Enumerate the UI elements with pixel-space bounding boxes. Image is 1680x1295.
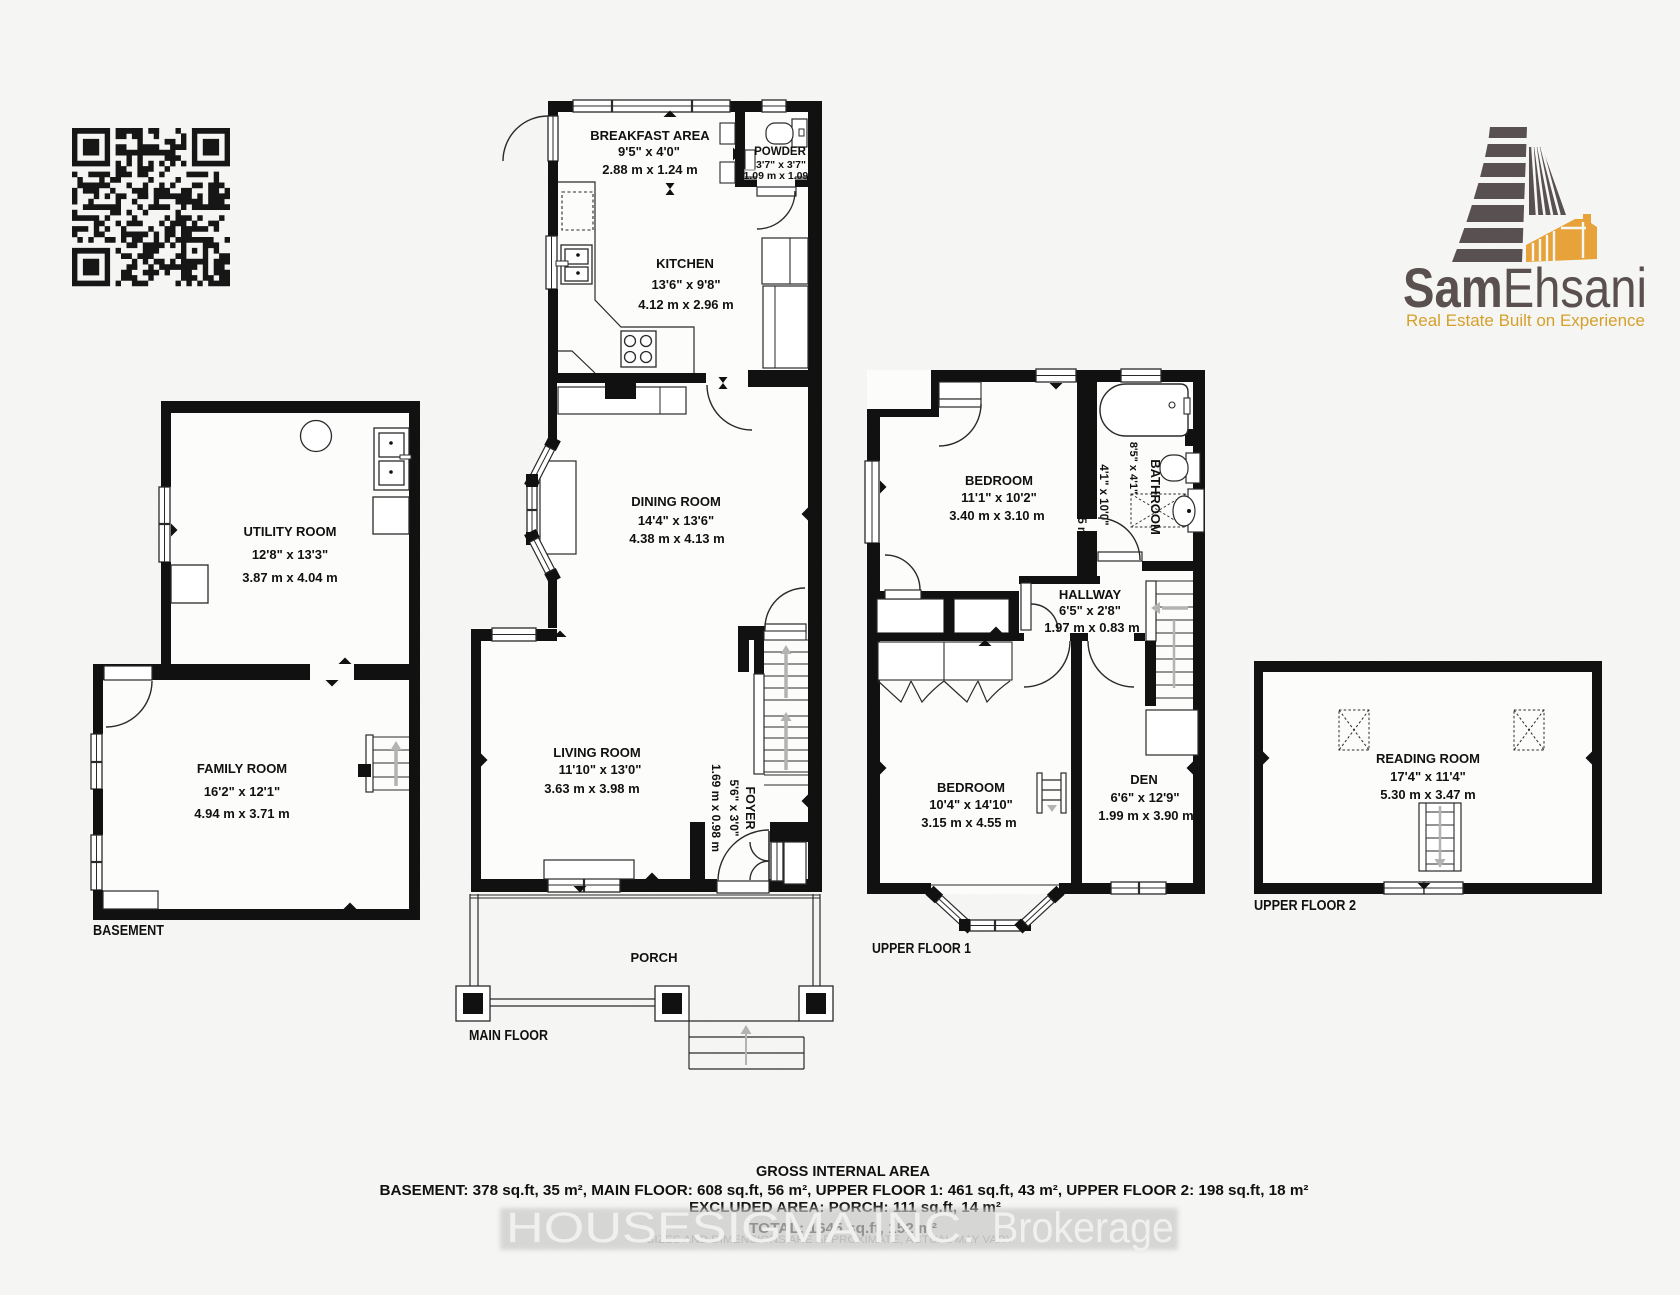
svg-text:17'4" x 11'4": 17'4" x 11'4" [1390,769,1466,784]
svg-text:16'2" x 12'1": 16'2" x 12'1" [204,784,280,799]
svg-text:14'4" x 13'6": 14'4" x 13'6" [638,513,714,528]
svg-text:MAIN FLOOR: MAIN FLOOR [469,1028,548,1044]
svg-text:PORCH: PORCH [631,950,678,965]
svg-text:3.15 m x 4.55 m: 3.15 m x 4.55 m [921,815,1016,830]
svg-text:3.63 m x 3.98 m: 3.63 m x 3.98 m [544,781,639,796]
svg-text:BEDROOM: BEDROOM [937,780,1005,795]
svg-text:UTILITY ROOM: UTILITY ROOM [244,524,337,539]
svg-text:KITCHEN: KITCHEN [656,256,714,271]
svg-text:DINING ROOM: DINING ROOM [631,494,721,509]
svg-text:POWDER: POWDER [754,146,806,158]
svg-text:Brokerage: Brokerage [992,1204,1174,1252]
svg-text:5'6" x 3'0": 5'6" x 3'0" [727,779,741,836]
svg-text:LIVING ROOM: LIVING ROOM [553,745,640,760]
svg-text:UPPER FLOOR 1: UPPER FLOOR 1 [872,941,971,957]
svg-text:UPPER FLOOR 2: UPPER FLOOR 2 [1254,898,1356,914]
svg-text:4.38 m x 4.13 m: 4.38 m x 4.13 m [629,531,724,546]
svg-text:13'6" x 9'8": 13'6" x 9'8" [651,277,720,292]
svg-text:FOYER: FOYER [743,786,757,829]
svg-text:9'5" x 4'0": 9'5" x 4'0" [618,144,680,159]
svg-text:GROSS INTERNAL AREA: GROSS INTERNAL AREA [756,1164,931,1180]
svg-text:8'5" x 4'1": 8'5" x 4'1" [1127,442,1139,494]
svg-text:DEN: DEN [1130,772,1157,787]
svg-text:READING ROOM: READING ROOM [1376,751,1480,766]
svg-text:5.30 m x 3.47 m: 5.30 m x 3.47 m [1380,787,1475,802]
svg-text:12'8" x 13'3": 12'8" x 13'3" [252,547,328,562]
svg-text:4'1" x 10'0": 4'1" x 10'0" [1097,464,1109,525]
svg-text:11'10" x 13'0": 11'10" x 13'0" [559,762,642,777]
svg-text:1.24 m x 3.05 m: 1.24 m x 3.05 m [1075,453,1087,537]
svg-text:1.99 m x 3.90 m: 1.99 m x 3.90 m [1098,808,1193,823]
svg-text:FAMILY ROOM: FAMILY ROOM [197,761,287,776]
svg-text:BREAKFAST AREA: BREAKFAST AREA [590,128,710,143]
svg-text:BASEMENT: 378 sq.ft, 35 m², MA: BASEMENT: 378 sq.ft, 35 m², MAIN FLOOR: … [380,1183,1309,1199]
svg-text:2.88 m x 1.24 m: 2.88 m x 1.24 m [602,162,697,177]
svg-text:6'6" x 12'9": 6'6" x 12'9" [1110,790,1179,805]
svg-text:BATHROOM: BATHROOM [1148,459,1163,535]
svg-text:BASEMENT: BASEMENT [93,923,164,939]
svg-text:HOUSESIGMA INC.: HOUSESIGMA INC. [506,1204,976,1252]
svg-text:3.40 m x 3.10 m: 3.40 m x 3.10 m [949,508,1044,523]
svg-text:SamEhsani: SamEhsani [1403,256,1647,319]
svg-text:3.87 m x 4.04 m: 3.87 m x 4.04 m [242,570,337,585]
svg-text:Real Estate Built on Experienc: Real Estate Built on Experience [1406,311,1645,330]
svg-text:HALLWAY: HALLWAY [1059,587,1122,602]
svg-text:BEDROOM: BEDROOM [965,473,1033,488]
svg-text:4.12 m x 2.96 m: 4.12 m x 2.96 m [638,297,733,312]
svg-text:1.69 m x 0.98 m: 1.69 m x 0.98 m [709,764,723,852]
svg-text:1.09 m x 1.09 m: 1.09 m x 1.09 m [743,170,820,182]
svg-text:6'5" x 2'8": 6'5" x 2'8" [1059,603,1121,618]
svg-text:10'4" x 14'10": 10'4" x 14'10" [929,797,1013,812]
svg-text:4.94 m x 3.71 m: 4.94 m x 3.71 m [194,806,289,821]
svg-text:11'1" x 10'2": 11'1" x 10'2" [961,490,1037,505]
svg-text:1.97 m x 0.83 m: 1.97 m x 0.83 m [1044,620,1139,635]
